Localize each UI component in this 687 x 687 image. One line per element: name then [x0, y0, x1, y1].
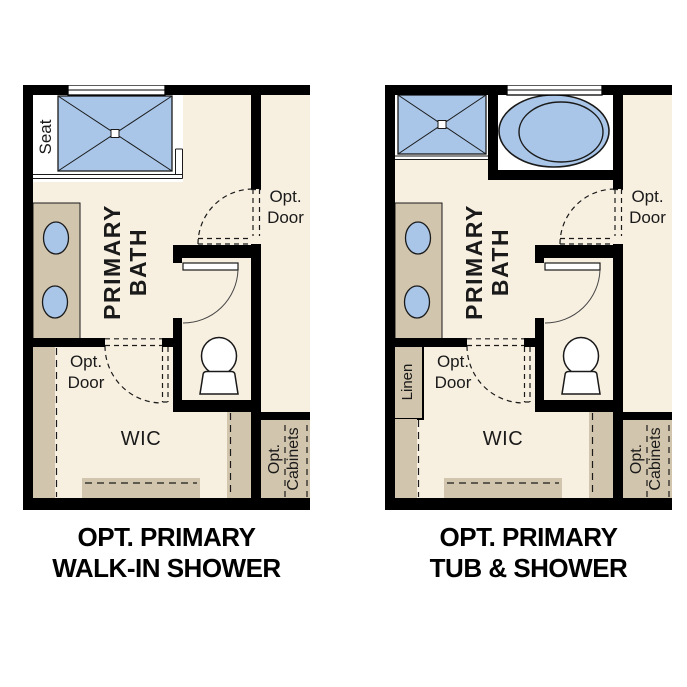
toilet-symbol [562, 338, 600, 395]
door-leaf [545, 263, 600, 270]
opt-wic-door-label: Opt. Door [53, 349, 119, 395]
caption-line2: TUB & SHOWER [385, 553, 672, 584]
room-label-line1: PRIMARY [99, 204, 125, 320]
window-symbol [68, 85, 165, 95]
opt-entry-door-label: Opt. Door [261, 184, 310, 230]
opt-cabinets-label: Opt. Cabinets [264, 421, 304, 497]
caption-tub-and-shower: OPT. PRIMARY TUB & SHOWER [385, 522, 672, 584]
room-label-line2: BATH [125, 228, 151, 296]
opt-wic-door-label: Opt. Door [420, 349, 486, 395]
door-leaf [183, 263, 238, 270]
caption-line1: OPT. PRIMARY [385, 522, 672, 553]
opt-cabinets-label: Opt. Cabinets [626, 421, 666, 497]
room-label: PRIMARY BATH [99, 187, 151, 337]
room-label-line1: PRIMARY [461, 204, 487, 320]
shower-drain-icon [111, 130, 119, 138]
linen-label: Linen [398, 347, 416, 417]
shower-symbol [395, 92, 489, 160]
vanity-symbol [33, 203, 80, 340]
sink-icon [406, 222, 431, 254]
room-label-line2: BATH [487, 228, 513, 296]
wic-label: WIC [82, 426, 200, 452]
shower-drain-icon [438, 121, 446, 129]
seat-label: Seat [36, 97, 56, 177]
sink-icon [44, 222, 69, 254]
room-label: PRIMARY BATH [461, 187, 513, 337]
floorplan-sheet: Seat PRIMARY BATH Opt. Door Opt. Door WI… [0, 0, 687, 687]
window-symbol [507, 85, 602, 95]
tub-symbol [498, 92, 613, 172]
sink-icon [405, 286, 430, 318]
sink-icon [43, 286, 68, 318]
opt-entry-door-label: Opt. Door [623, 184, 672, 230]
vanity-symbol [395, 203, 442, 340]
caption-walk-in-shower: OPT. PRIMARY WALK-IN SHOWER [23, 522, 310, 584]
caption-line1: OPT. PRIMARY [23, 522, 310, 553]
caption-line2: WALK-IN SHOWER [23, 553, 310, 584]
plan-walk-in-shower: Seat PRIMARY BATH Opt. Door Opt. Door WI… [23, 85, 310, 510]
toilet-symbol [200, 338, 238, 395]
plan-tub-and-shower: PRIMARY BATH Opt. Door Linen Opt. Door W… [385, 85, 672, 510]
wic-label: WIC [444, 426, 562, 452]
